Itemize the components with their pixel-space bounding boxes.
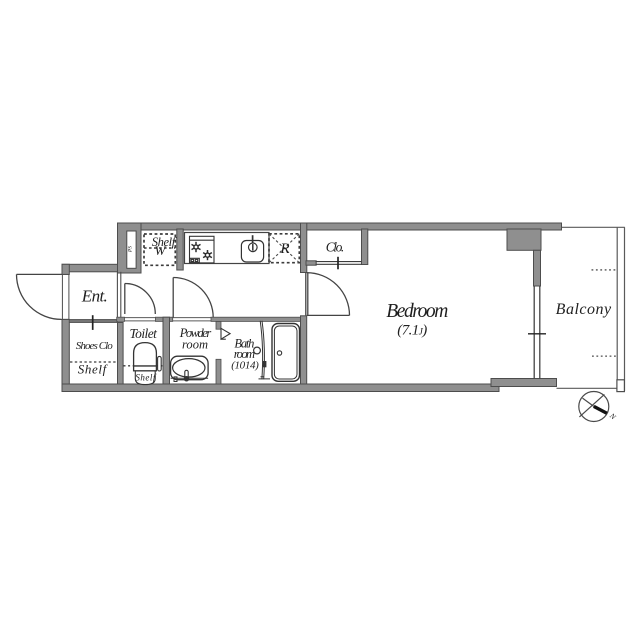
svg-text:Shelf: Shelf [78, 362, 109, 377]
svg-text:R: R [279, 241, 289, 257]
svg-text:PS: PS [128, 246, 134, 253]
svg-text:(1014): (1014) [231, 360, 259, 372]
svg-text:Balcony: Balcony [556, 301, 612, 318]
svg-text:W: W [155, 243, 167, 258]
svg-text:Shoes Clo: Shoes Clo [76, 340, 114, 352]
svg-text:Bedroom: Bedroom [386, 301, 448, 322]
svg-text:Ent.: Ent. [81, 287, 108, 306]
svg-text:Toilet: Toilet [129, 326, 158, 341]
svg-text:Shelf: Shelf [135, 373, 156, 383]
svg-text:(7.1J): (7.1J) [397, 322, 427, 338]
svg-text:room: room [182, 338, 208, 352]
svg-text:Clo.: Clo. [326, 240, 345, 255]
